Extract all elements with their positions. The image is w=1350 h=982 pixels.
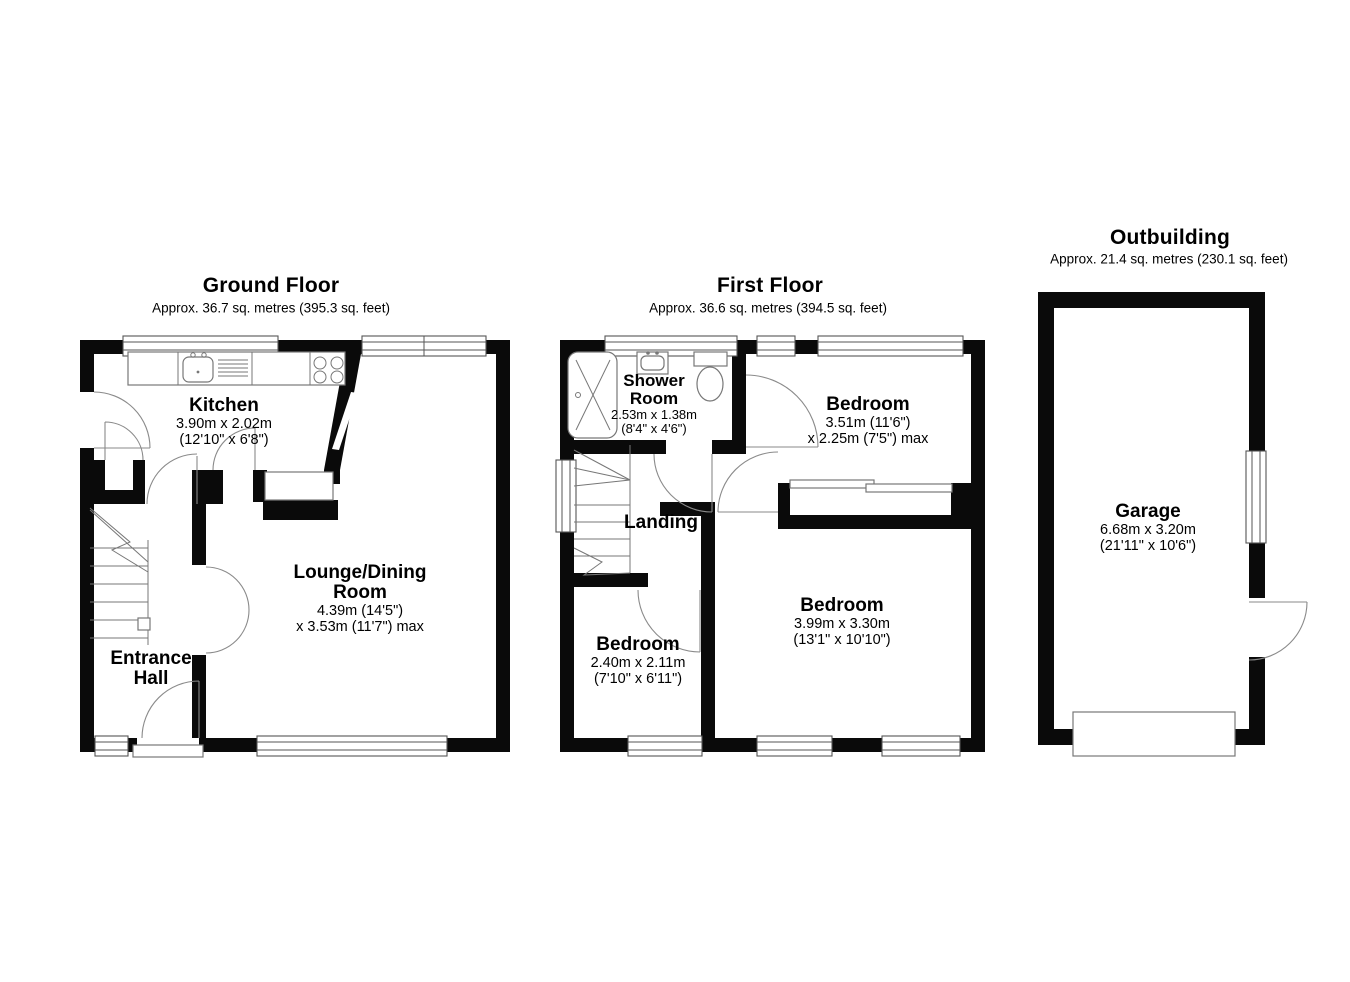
- front-door-step: [133, 745, 203, 757]
- first-staircase: [574, 445, 630, 575]
- ground-windows: [95, 336, 486, 756]
- garage-door: [1073, 712, 1235, 756]
- garage-window: [1246, 451, 1266, 543]
- chimney-breast: [263, 500, 338, 520]
- first-floor-subtitle: Approx. 36.6 sq. metres (394.5 sq. feet): [649, 301, 887, 316]
- sliding-door: [866, 484, 952, 492]
- ground-floor-plan: [79, 336, 510, 757]
- outbuilding-subtitle: Approx. 21.4 sq. metres (230.1 sq. feet): [1050, 252, 1288, 267]
- ground-staircase: [90, 508, 150, 645]
- wardrobe: [778, 480, 971, 529]
- first-floor-title: First Floor: [717, 274, 823, 298]
- room-label-bedroom-small: Bedroom 2.40m x 2.11m (7'10" x 6'11"): [591, 635, 686, 687]
- room-label-kitchen: Kitchen 3.90m x 2.02m (12'10" x 6'8"): [176, 396, 272, 448]
- sliding-door: [790, 480, 874, 488]
- lounge-recess: [265, 472, 333, 500]
- room-label-shower-room: Shower Room 2.53m x 1.38m (8'4" x 4'6"): [611, 372, 697, 436]
- room-label-lounge-dining: Lounge/Dining Room 4.39m (14'5") x 3.53m…: [294, 563, 427, 635]
- ground-outer-walls: [80, 340, 510, 752]
- kitchen-sink-icon: [183, 353, 213, 382]
- outbuilding-title: Outbuilding: [1110, 226, 1230, 250]
- floorplan-drawing: [0, 0, 1350, 982]
- room-label-bedroom-large: Bedroom 3.99m x 3.30m (13'1" x 10'10"): [793, 596, 890, 648]
- toilet-icon: [694, 352, 727, 401]
- shower-tray-icon: [568, 352, 617, 438]
- room-label-bedroom-top: Bedroom 3.51m (11'6") x 2.25m (7'5") max: [808, 395, 929, 447]
- room-label-landing: Landing: [624, 513, 698, 533]
- ground-floor-subtitle: Approx. 36.7 sq. metres (395.3 sq. feet): [152, 301, 390, 316]
- kitchen-counter: [128, 352, 345, 385]
- ground-floor-title: Ground Floor: [203, 274, 340, 298]
- floorplan-page: Ground Floor Approx. 36.7 sq. metres (39…: [0, 0, 1350, 982]
- room-label-entrance-hall: Entrance Hall: [110, 649, 191, 689]
- room-label-garage: Garage 6.68m x 3.20m (21'11" x 10'6"): [1100, 502, 1196, 554]
